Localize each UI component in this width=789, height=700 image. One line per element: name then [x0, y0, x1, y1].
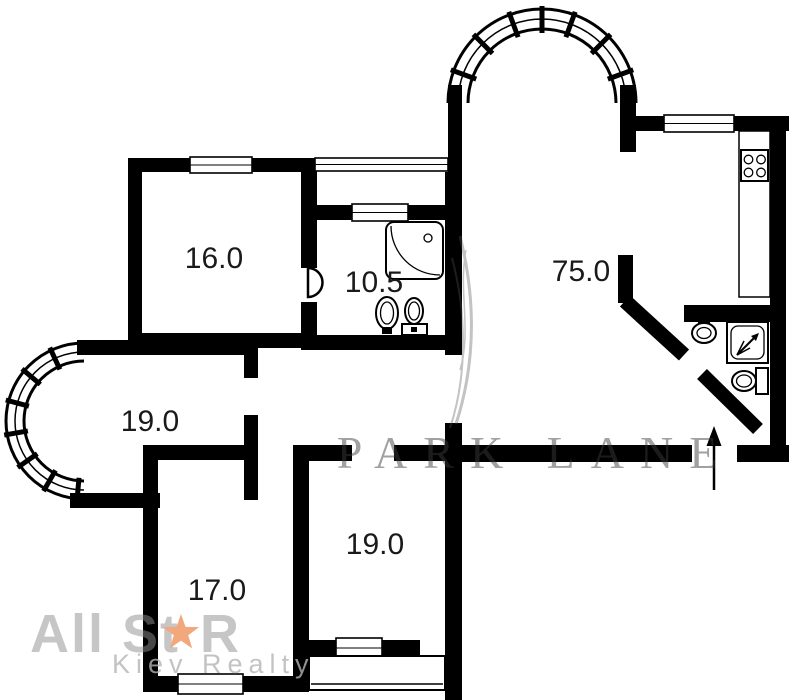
wall-room19b-south-b — [382, 640, 420, 656]
window-bathroom — [352, 204, 408, 221]
wall-arch-stub-left — [448, 85, 462, 173]
wall-bathroom-south — [301, 335, 462, 350]
window-room16 — [190, 157, 252, 173]
balcony — [309, 656, 445, 690]
wall-kitchen-north-a — [636, 116, 664, 131]
floor-plan-page: 16.0 10.5 75.0 19.0 17.0 19.0 PARK LANE … — [0, 0, 789, 700]
shower-cabin-icon — [727, 322, 768, 363]
wall-living-southwest-stub — [618, 255, 633, 303]
wall-room19l-north — [77, 340, 258, 355]
wall-bathroom-north-a — [301, 205, 352, 220]
agency-subtitle: Kiev Realty — [112, 649, 315, 679]
bathroom-area-label: 10.5 — [345, 266, 403, 299]
room19l-area-label: 19.0 — [121, 405, 179, 438]
wall-room16-north-a — [128, 158, 190, 172]
room19b-area-label: 19.0 — [346, 528, 404, 561]
wall-entry-corner — [737, 445, 789, 462]
developer-watermark: PARK LANE — [337, 427, 734, 478]
wall-arch-stub-right — [620, 85, 636, 152]
wall-bathroom-north-b — [408, 205, 448, 220]
wall-room17-north — [158, 445, 258, 460]
wall-wc-north — [684, 305, 770, 322]
floor-plan-drawing: 16.0 10.5 75.0 19.0 17.0 19.0 PARK LANE … — [0, 0, 789, 700]
room17-area-label: 17.0 — [188, 574, 246, 607]
wall-room19l-east-upper — [244, 340, 258, 378]
room16-area-label: 16.0 — [185, 242, 243, 275]
wall-room16-west — [128, 158, 142, 348]
stove-icon — [741, 150, 768, 181]
wc-toilet-icon — [732, 368, 768, 394]
wall-east-outer — [770, 116, 786, 462]
window-strip-north — [315, 158, 448, 171]
living-area-label: 75.0 — [552, 255, 610, 288]
window-kitchen — [664, 115, 734, 132]
